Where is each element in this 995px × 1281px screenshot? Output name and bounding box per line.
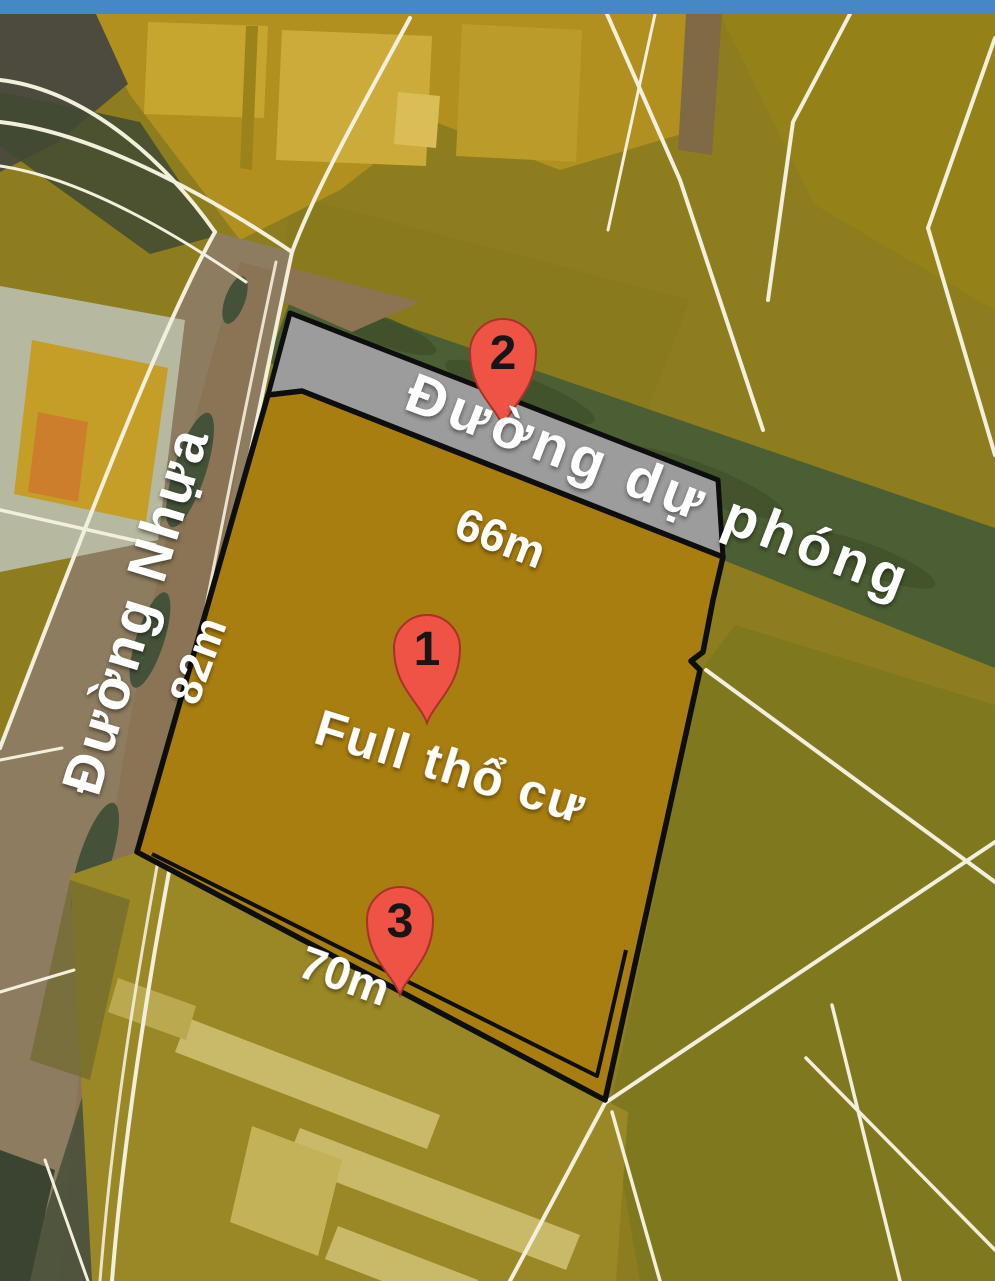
marker-number: 1 bbox=[414, 623, 441, 676]
top-bar bbox=[0, 0, 995, 14]
marker-number: 3 bbox=[387, 895, 414, 948]
listing-map-screenshot: 2 1 3 Đường dự phóng 66m Đường Nhựa 82m … bbox=[0, 0, 995, 1281]
map-canvas: 2 1 3 Đường dự phóng 66m Đường Nhựa 82m … bbox=[0, 0, 995, 1281]
building-roof bbox=[394, 92, 440, 148]
building-roof bbox=[456, 24, 582, 162]
marker-number: 2 bbox=[490, 327, 517, 380]
building-roof bbox=[28, 412, 88, 502]
